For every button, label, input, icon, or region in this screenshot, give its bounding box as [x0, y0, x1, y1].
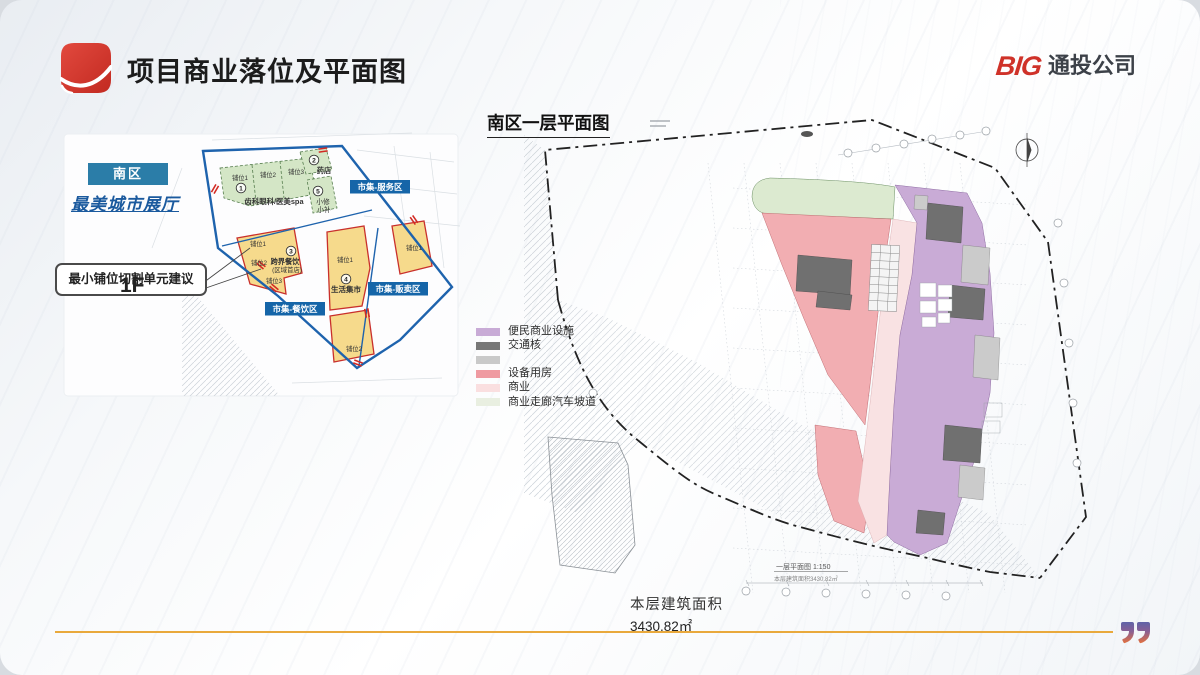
- slide: 项目商业落位及平面图 BIG通投公司: [0, 0, 1200, 675]
- legend-item: 交通核: [476, 340, 612, 351]
- footer-divider-line: [55, 631, 1113, 633]
- svg-text:小补: 小补: [317, 205, 331, 214]
- svg-text:1: 1: [239, 185, 243, 192]
- district-badge: 南区: [88, 163, 168, 185]
- quote-icon: [1121, 620, 1155, 646]
- legend-swatch: [476, 370, 500, 378]
- svg-text:铺位2: 铺位2: [260, 170, 277, 179]
- floor-area-label: 本层建筑面积: [630, 593, 723, 614]
- svg-text:3: 3: [289, 248, 293, 255]
- svg-text:铺位2: 铺位2: [251, 258, 268, 267]
- legend-item: 便民商业设施: [476, 326, 612, 337]
- svg-text:一层平面图 1:150: 一层平面图 1:150: [776, 563, 831, 571]
- svg-text:铺位3: 铺位3: [288, 167, 305, 176]
- svg-text:市集-贩卖区: 市集-贩卖区: [376, 284, 421, 294]
- legend-item: 商业: [476, 382, 612, 393]
- svg-text:铺位2: 铺位2: [346, 344, 363, 353]
- svg-text:5: 5: [316, 188, 320, 195]
- legend-label: 商业: [508, 382, 530, 393]
- plan-legend: 便民商业设施 交通核 设备用房 商业 商业走廊汽车坡道: [476, 326, 612, 411]
- legend-item: [476, 354, 612, 365]
- legend-swatch: [476, 328, 500, 336]
- floor-area-caption: 本层建筑面积 3430.82㎡: [630, 593, 723, 635]
- legend-item: 设备用房: [476, 368, 612, 379]
- hall-title: 最美城市展厅: [71, 190, 179, 215]
- svg-text:铺位1: 铺位1: [337, 255, 354, 264]
- zone-car-ramp-green: [752, 178, 895, 219]
- svg-text:市集-餐饮区: 市集-餐饮区: [273, 304, 318, 314]
- legend-swatch: [476, 342, 500, 350]
- svg-text:铺位3: 铺位3: [266, 276, 283, 285]
- page-title: 项目商业落位及平面图: [127, 50, 407, 89]
- legend-label: 便民商业设施: [508, 326, 574, 337]
- svg-text:铺位1: 铺位1: [250, 239, 267, 248]
- escalator-atrium: [868, 244, 899, 311]
- title-icon: [60, 42, 112, 94]
- svg-text:(区域首店): (区域首店): [272, 265, 302, 274]
- legend-swatch: [476, 356, 500, 364]
- north-arrow-icon: [1016, 133, 1038, 167]
- floor-label: 1F: [120, 274, 145, 298]
- logo-big-mark: BIG: [994, 51, 1042, 82]
- svg-text:跨界餐饮: 跨界餐饮: [271, 257, 301, 266]
- svg-text:药店: 药店: [317, 166, 331, 175]
- legend-swatch: [476, 384, 500, 392]
- svg-text:2: 2: [312, 157, 316, 164]
- legend-label: 商业走廊汽车坡道: [508, 396, 612, 408]
- legend-swatch: [476, 398, 500, 406]
- svg-text:本层建筑面积3430.82㎡: 本层建筑面积3430.82㎡: [774, 575, 838, 583]
- legend-item: 商业走廊汽车坡道: [476, 396, 612, 408]
- logo-company-name: 通投公司: [1048, 53, 1136, 78]
- svg-text:铺位1: 铺位1: [232, 173, 249, 182]
- legend-label: 设备用房: [508, 368, 552, 379]
- svg-text:4: 4: [344, 276, 348, 283]
- svg-text:生活集市: 生活集市: [331, 284, 361, 294]
- legend-label: 交通核: [508, 340, 541, 351]
- company-logo: BIG通投公司: [996, 48, 1136, 82]
- svg-text:铺位1: 铺位1: [406, 243, 423, 252]
- svg-text:小修: 小修: [316, 197, 330, 206]
- svg-text:齿科眼科/医美spa: 齿科眼科/医美spa: [244, 197, 304, 206]
- svg-text:市集-服务区: 市集-服务区: [358, 182, 403, 192]
